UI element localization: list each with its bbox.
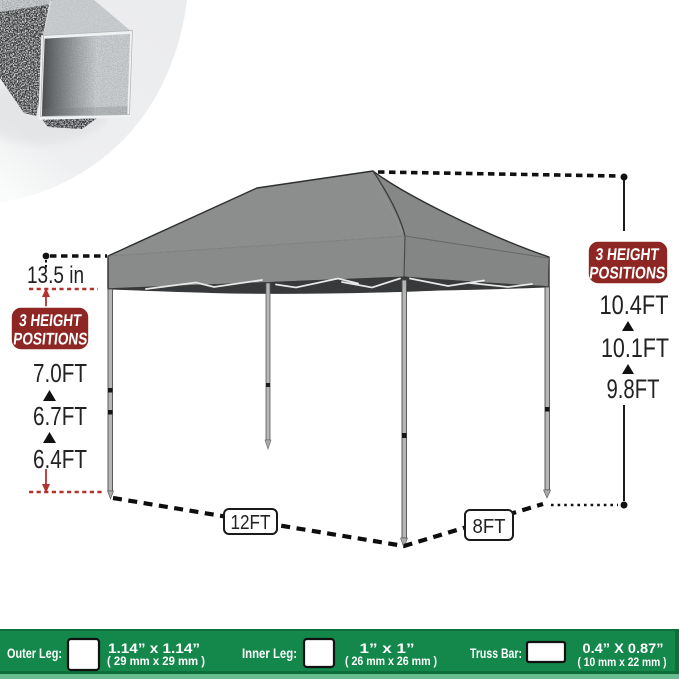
- svg-text:8FT: 8FT: [473, 516, 506, 538]
- svg-text:3 HEIGHT: 3 HEIGHT: [595, 245, 660, 264]
- svg-text:Outer Leg:: Outer Leg:: [7, 646, 62, 661]
- svg-text:( 10 mm x 22 mm ): ( 10 mm x 22 mm ): [578, 657, 667, 669]
- svg-text:( 29 mm x 29 mm ): ( 29 mm x 29 mm ): [107, 656, 205, 668]
- svg-text:6.4FT: 6.4FT: [33, 444, 87, 474]
- svg-text:7.0FT: 7.0FT: [33, 358, 87, 388]
- svg-text:9.8FT: 9.8FT: [607, 374, 660, 404]
- svg-text:Inner Leg:: Inner Leg:: [242, 646, 297, 661]
- svg-text:12FT: 12FT: [231, 512, 271, 534]
- svg-text:Truss Bar:: Truss Bar:: [470, 646, 522, 661]
- svg-text:POSITIONS: POSITIONS: [588, 264, 666, 283]
- svg-text:0.4” X 0.87”: 0.4” X 0.87”: [583, 641, 664, 656]
- svg-text:10.1FT: 10.1FT: [601, 333, 669, 363]
- svg-text:1” x 1”: 1” x 1”: [360, 641, 415, 656]
- svg-text:POSITIONS: POSITIONS: [12, 330, 88, 349]
- svg-text:( 26 mm x 26 mm ): ( 26 mm x 26 mm ): [345, 656, 437, 668]
- svg-text:6.7FT: 6.7FT: [33, 401, 87, 431]
- svg-text:3 HEIGHT: 3 HEIGHT: [18, 311, 82, 330]
- svg-text:1.14” x 1.14”: 1.14” x 1.14”: [108, 641, 200, 656]
- svg-text:13.5 in: 13.5 in: [27, 262, 84, 289]
- svg-text:10.4FT: 10.4FT: [600, 290, 669, 320]
